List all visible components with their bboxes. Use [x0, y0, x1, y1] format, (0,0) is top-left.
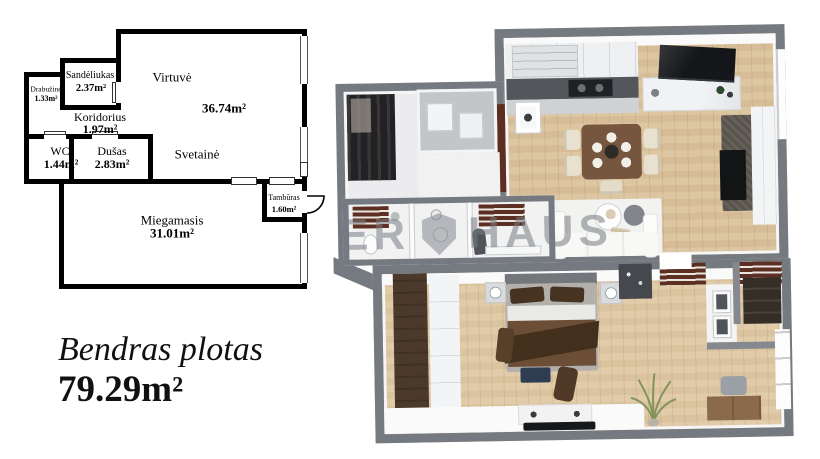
wall-face — [418, 152, 501, 197]
total-area-value: 79.29m² — [58, 368, 183, 411]
watermark-text-left: ER — [339, 210, 411, 261]
wall-segment — [733, 262, 741, 324]
wall-segment — [59, 284, 307, 289]
window-symbol — [300, 36, 308, 84]
dining-table — [581, 124, 642, 180]
room-area-virtuve: 36.74m² — [202, 102, 246, 115]
window — [776, 49, 787, 139]
dining-chair — [644, 154, 661, 174]
closet-column — [393, 273, 430, 426]
room-area-drabuzine: 1.33m² — [34, 95, 57, 103]
entrance-door-arc — [307, 193, 327, 217]
tv-bench — [523, 422, 595, 431]
wall-segment — [24, 72, 65, 77]
room-label-wc: WC — [50, 145, 69, 157]
pillow — [550, 286, 585, 302]
room-area-dusas: 2.83m² — [95, 158, 130, 170]
wall-segment — [262, 217, 307, 222]
dining-chair — [643, 128, 660, 148]
wall-segment — [59, 181, 64, 287]
room-label-dusas: Dušas — [97, 145, 126, 157]
room-area-miegamasis: 31.01m² — [150, 227, 194, 240]
door-opening — [116, 82, 121, 103]
dresser — [619, 264, 653, 300]
kitchen-shelf-unit — [512, 45, 579, 78]
room-label-sandeliukas: Sandėliukas — [66, 71, 114, 81]
hanging-clothes — [351, 98, 372, 132]
floor-band — [384, 404, 644, 434]
window-symbol — [269, 177, 295, 185]
foot-bench — [520, 367, 550, 383]
wall-segment — [116, 29, 121, 63]
dining-chair — [563, 130, 580, 150]
wall-segment — [60, 58, 121, 63]
watermark: ER HAUS — [333, 205, 654, 261]
dining-chair — [564, 156, 581, 176]
picture-frame — [713, 291, 730, 312]
right-wall-wardrobe — [751, 106, 779, 224]
window-symbol — [231, 177, 257, 185]
dryer — [459, 112, 483, 138]
total-area-title: Bendras plotas — [58, 331, 263, 369]
wall-segment — [148, 134, 153, 184]
tv — [658, 45, 736, 83]
pillow — [510, 286, 545, 304]
room-label-virtuve: Virtuvė — [153, 71, 192, 84]
wall-segment — [116, 29, 307, 34]
faucet — [524, 114, 532, 122]
dining-chair — [600, 180, 622, 194]
wall-segment — [707, 341, 783, 349]
room-label-svetaine: Svetainė — [175, 148, 220, 161]
window-symbol — [300, 127, 308, 162]
shield-icon — [422, 213, 457, 256]
door-symbol — [112, 82, 116, 103]
wardrobe-white — [429, 275, 461, 416]
picture-frame — [714, 316, 731, 337]
room-label-drabuzine: Drabužinė — [30, 85, 61, 93]
door-opening — [659, 253, 691, 270]
desk-chair — [721, 376, 747, 395]
wall-segment — [24, 72, 29, 184]
room-label-tamburas: Tambūras — [268, 194, 299, 202]
cooktop — [568, 79, 612, 97]
nightstand — [485, 282, 506, 303]
floorplan-page: Virtuvė 36.74m² Svetainė Sandėliukas 2.3… — [0, 0, 820, 459]
desk — [707, 396, 761, 421]
door-symbol — [44, 131, 66, 135]
media-cabinet — [743, 277, 782, 324]
window-symbol — [300, 233, 308, 283]
room-area-sandeliukas: 2.37m² — [76, 84, 106, 95]
door-symbol — [300, 162, 308, 177]
render-3d: ER HAUS — [329, 11, 802, 451]
window — [775, 329, 791, 409]
media-panel — [720, 150, 747, 200]
room-area-koridorius: 1.97m² — [83, 123, 118, 135]
room-area-tamburas: 1.60m² — [272, 205, 297, 214]
watermark-text-right: HAUS — [468, 206, 614, 259]
washing-machine — [427, 103, 453, 131]
room-area-wc: 1.44m² — [44, 158, 79, 170]
plant — [628, 366, 677, 429]
